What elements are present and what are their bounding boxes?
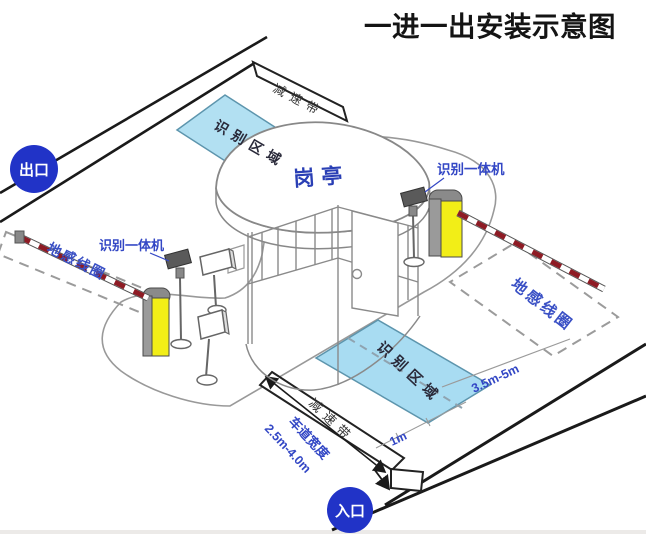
camera-bracket-entry — [409, 206, 417, 216]
diagram-title: 一进一出安装示意图 — [364, 11, 616, 42]
exit-badge-label: 出口 — [19, 161, 49, 179]
reader-exit-label: 识别一体机 — [99, 238, 164, 253]
barrier-post-entry-side — [429, 199, 441, 256]
barrier-arm-exit-tip — [15, 231, 24, 243]
entrance-badge: 入口 — [327, 487, 373, 533]
entrance-badge-label: 入口 — [335, 503, 365, 520]
installation-diagram: 一进一出安装示意图 出口 入口 岗亭 识别区域 识别区域 地感线圈 地感线圈 减… — [0, 0, 646, 534]
exit-badge: 出口 — [10, 145, 58, 193]
camera-pole-exit — [180, 278, 181, 340]
barrier-post-exit-side — [143, 296, 152, 356]
sign2-base — [197, 375, 217, 385]
bottom-edge-strip — [0, 530, 646, 534]
diagram-canvas: 一进一出安装示意图 出口 入口 岗亭 识别区域 识别区域 地感线圈 地感线圈 减… — [0, 0, 646, 534]
barrier-post-entry — [429, 190, 462, 257]
barrier-post-exit-front — [152, 298, 169, 356]
booth-label: 岗亭 — [293, 163, 351, 191]
camera-base-exit — [171, 340, 191, 349]
booth-door — [352, 211, 398, 316]
entry-detector-box — [391, 469, 423, 491]
reader-entry-label: 识别一体机 — [437, 161, 505, 177]
barrier-post-entry-front — [441, 201, 462, 257]
camera-pole-entry — [413, 215, 414, 258]
camera-base-entry — [404, 258, 424, 267]
camera-bracket-exit — [176, 268, 184, 278]
